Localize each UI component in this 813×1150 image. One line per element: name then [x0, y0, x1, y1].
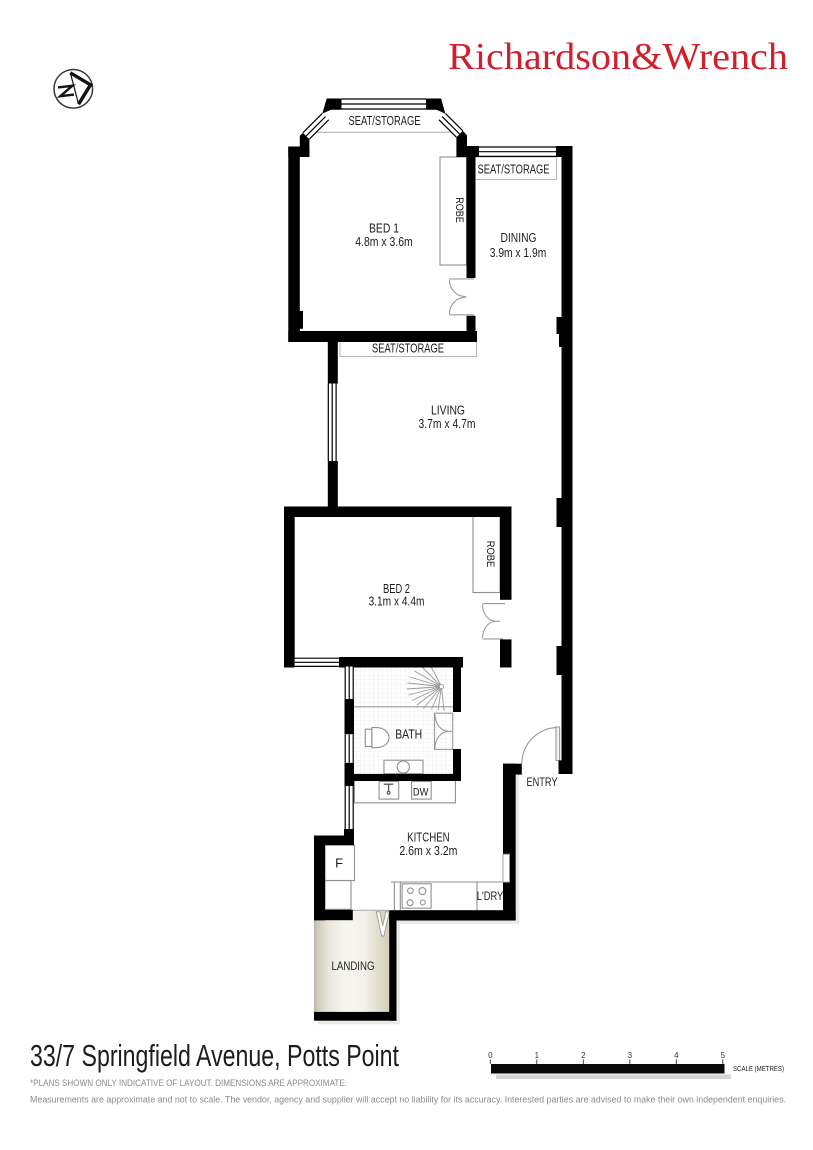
svg-text:2.6m x 3.2m: 2.6m x 3.2m [399, 843, 457, 858]
svg-text:SCALE (METRES): SCALE (METRES) [733, 1064, 784, 1073]
svg-text:5: 5 [721, 1051, 726, 1060]
svg-text:Richardson&Wrench: Richardson&Wrench [448, 36, 788, 78]
svg-text:0: 0 [488, 1051, 493, 1060]
svg-text:4: 4 [674, 1051, 679, 1060]
svg-text:BATH: BATH [395, 727, 422, 742]
svg-text:3.9m x 1.9m: 3.9m x 1.9m [490, 245, 547, 260]
svg-text:LANDING: LANDING [332, 961, 375, 973]
svg-text:ROBE: ROBE [453, 197, 465, 223]
svg-text:3.1m x 4.4m: 3.1m x 4.4m [369, 594, 425, 609]
svg-text:F: F [335, 856, 343, 871]
svg-text:3: 3 [628, 1051, 633, 1060]
svg-text:*PLANS SHOWN ONLY INDICATIVE O: *PLANS SHOWN ONLY INDICATIVE OF LAYOUT. … [30, 1078, 347, 1088]
svg-text:SEAT/STORAGE: SEAT/STORAGE [349, 114, 421, 128]
svg-text:SEAT/STORAGE: SEAT/STORAGE [372, 342, 444, 356]
svg-text:ROBE: ROBE [484, 541, 496, 568]
svg-text:1: 1 [535, 1051, 540, 1060]
svg-text:L'DRY: L'DRY [477, 891, 504, 903]
svg-text:Measurements are approximate a: Measurements are approximate and not to … [30, 1095, 786, 1105]
svg-text:ENTRY: ENTRY [527, 777, 558, 789]
svg-text:4.8m x 3.6m: 4.8m x 3.6m [355, 234, 413, 249]
svg-text:DINING: DINING [501, 230, 537, 245]
svg-text:SEAT/STORAGE: SEAT/STORAGE [478, 162, 550, 176]
svg-text:3.7m x 4.7m: 3.7m x 4.7m [419, 416, 476, 431]
svg-text:DW: DW [413, 787, 429, 799]
svg-text:2: 2 [581, 1051, 586, 1060]
svg-text:33/7 Springfield Avenue, Potts: 33/7 Springfield Avenue, Potts Point [30, 1038, 399, 1073]
